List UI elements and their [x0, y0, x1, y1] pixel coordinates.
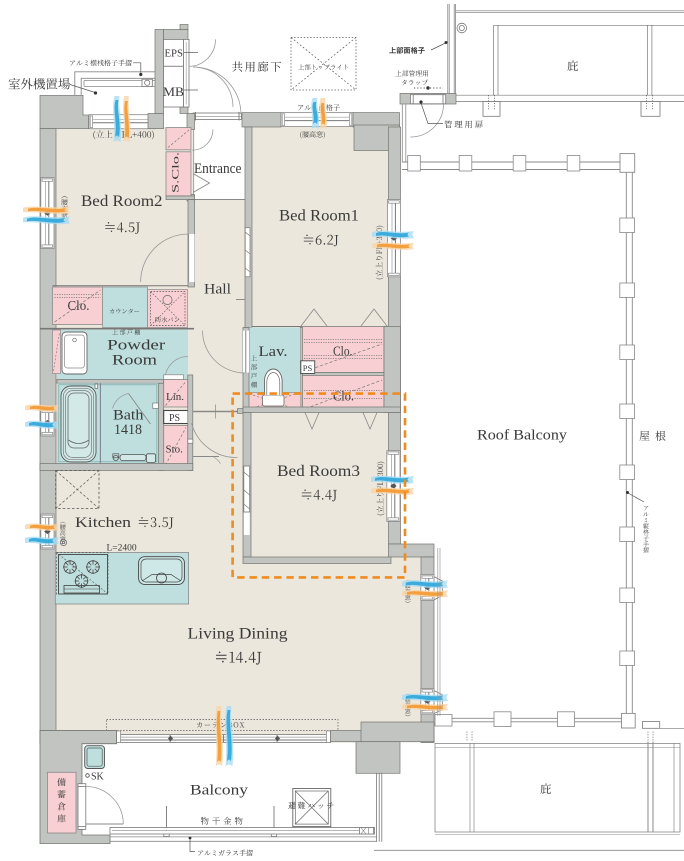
svg-text:Balcony: Balcony — [190, 783, 249, 799]
svg-text:Clo.: Clo. — [68, 299, 90, 314]
svg-text:Bed Room1: Bed Room1 — [279, 208, 359, 225]
svg-text:Sto.: Sto. — [166, 444, 184, 456]
svg-text:Lin.: Lin. — [166, 391, 184, 403]
svg-text:Hall: Hall — [204, 282, 231, 298]
svg-text:MB: MB — [163, 84, 184, 99]
svg-text:Entrance: Entrance — [194, 161, 242, 177]
svg-text:Roof Balcony: Roof Balcony — [477, 428, 568, 444]
svg-text:Living Dining: Living Dining — [188, 626, 288, 643]
svg-text:L=2400: L=2400 — [107, 544, 137, 554]
svg-text:S.Clo.: S.Clo. — [172, 152, 182, 193]
svg-text:1418: 1418 — [114, 422, 142, 438]
svg-text:Bed Room3: Bed Room3 — [277, 463, 360, 480]
svg-text:SK: SK — [91, 772, 105, 783]
svg-text:Clo.: Clo. — [333, 389, 354, 404]
svg-text:Clo.: Clo. — [333, 344, 353, 359]
svg-text:EPS: EPS — [165, 48, 184, 60]
svg-text:PS: PS — [169, 413, 180, 424]
svg-text:PS: PS — [303, 363, 313, 373]
svg-text:Kitchen: Kitchen — [75, 515, 132, 531]
svg-text:Bed Room2: Bed Room2 — [81, 193, 163, 210]
svg-text:Powder: Powder — [107, 338, 165, 354]
svg-text:Lav.: Lav. — [259, 344, 288, 360]
svg-text:Room: Room — [112, 353, 157, 369]
